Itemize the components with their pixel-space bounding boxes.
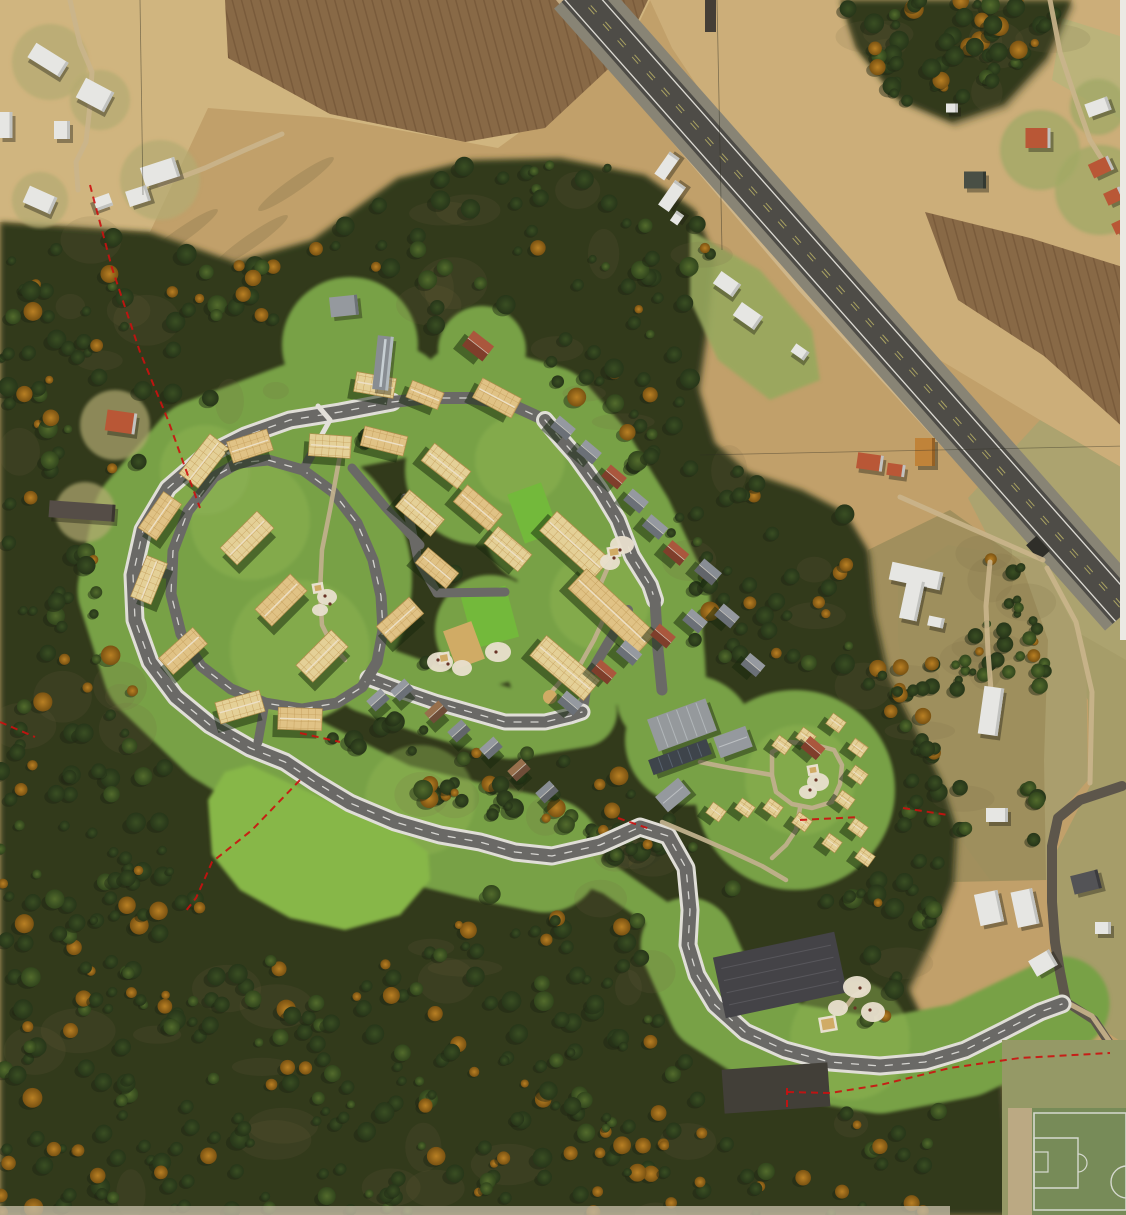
photo-tint-overlay	[0, 0, 1126, 1215]
aerial-masterplan-image: Aerial masterplan rendering of a new res…	[0, 0, 1126, 1215]
site-plan-aerial	[0, 0, 1126, 1215]
